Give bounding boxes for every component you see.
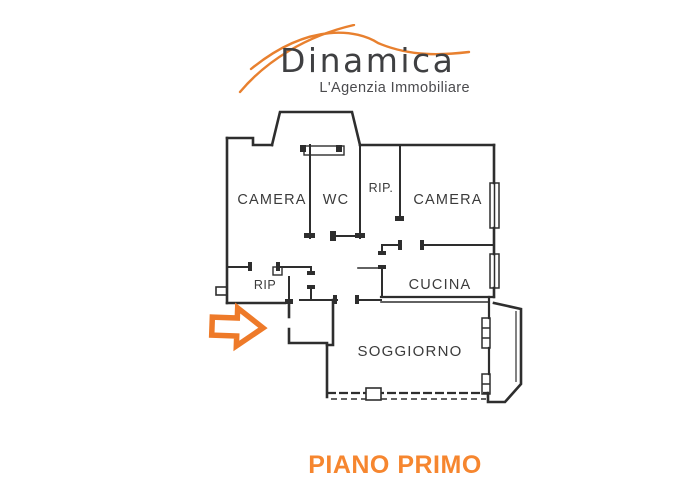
floor-plan: CAMERA WC RIP. CAMERA RIP CUCINA SOGGIOR…: [0, 0, 700, 500]
room-label-wc: WC: [323, 192, 350, 208]
entrance-arrow-icon: [211, 307, 263, 347]
room-label-camera-right: CAMERA: [413, 192, 482, 208]
room-label-soggiorno: SOGGIORNO: [358, 343, 463, 360]
room-label-rip-lower: RIP: [254, 278, 276, 292]
room-label-camera-left: CAMERA: [237, 192, 306, 208]
room-label-rip-top: RIP.: [369, 181, 394, 195]
page: Dinamica L'Agenzia Immobiliare: [0, 0, 700, 500]
floor-title: PIANO PRIMO: [295, 451, 495, 480]
room-label-cucina: CUCINA: [409, 277, 472, 293]
